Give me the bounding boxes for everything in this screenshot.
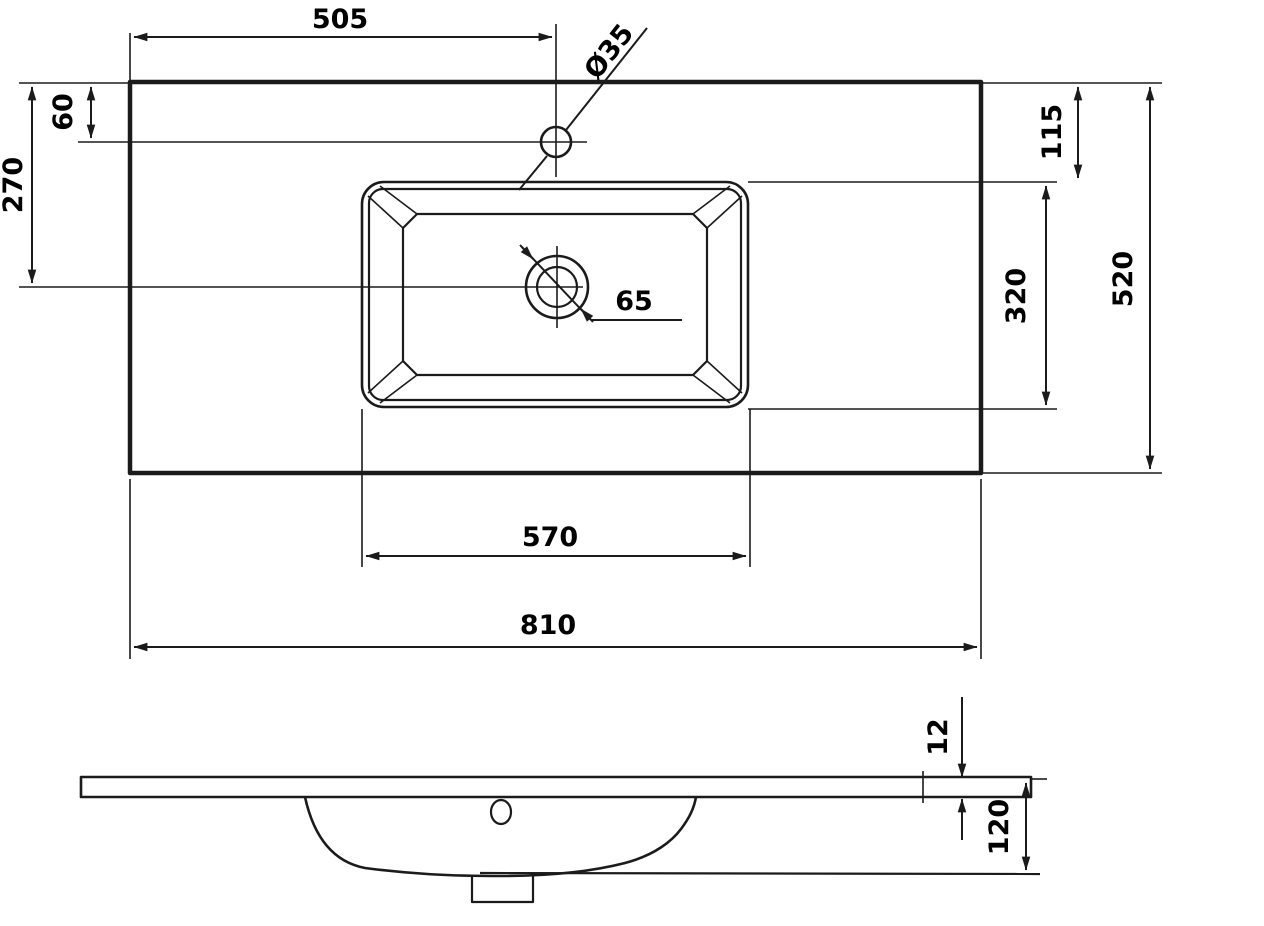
basin-corner-bevel xyxy=(368,361,403,393)
countertop-slab-profile xyxy=(81,777,1031,797)
basin-corner-bevel xyxy=(380,375,417,403)
basin-plan xyxy=(362,182,748,407)
basin-corner-bevel xyxy=(707,196,742,228)
dim-label-basin-width: 570 xyxy=(522,522,578,553)
dim-label-drain-hole: 65 xyxy=(615,286,653,317)
bowl-bottom-reference-line xyxy=(480,873,1040,874)
basin-corner-bevel xyxy=(380,186,417,214)
dim-label-overall-height: 120 xyxy=(984,799,1015,855)
basin-corner-bevel xyxy=(707,361,742,393)
dim-label-rim-offset-right: 115 xyxy=(1037,104,1068,160)
dim-label-overall-width: 810 xyxy=(520,610,576,641)
dim-65-group xyxy=(520,245,682,322)
dim-label-slab-thickness: 12 xyxy=(923,718,954,756)
basin-corner-bevel xyxy=(693,375,730,403)
bowl-profile xyxy=(305,797,696,876)
washbasin-drawing: 505 Ø35 60 270 115 320 520 65 570 810 12… xyxy=(0,0,1264,926)
dim-label-top-width: 505 xyxy=(312,4,368,35)
technical-drawing-canvas: 505 Ø35 60 270 115 320 520 65 570 810 12… xyxy=(0,0,1264,926)
basin-inner-rim xyxy=(369,189,741,400)
dim-label-faucet-offset: 60 xyxy=(48,93,79,131)
dim-label-drain-offset: 270 xyxy=(0,157,29,213)
dimension-labels: 505 Ø35 60 270 115 320 520 65 570 810 12… xyxy=(0,4,1139,855)
basin-outer-rim xyxy=(362,182,748,407)
dim-label-faucet-hole: Ø35 xyxy=(578,18,640,85)
side-view xyxy=(81,697,1047,902)
dim-arrow-65 xyxy=(520,245,533,259)
faucet-leader-line xyxy=(519,156,547,190)
basin-corner-bevel xyxy=(368,196,403,228)
basin-bowl-bottom xyxy=(403,214,707,375)
dim-label-basin-depth: 320 xyxy=(1001,268,1032,324)
drain-stub-profile xyxy=(472,875,533,902)
dim-label-overall-depth: 520 xyxy=(1108,251,1139,307)
plan-view xyxy=(19,24,1162,659)
faucet-hole-profile xyxy=(491,800,511,824)
basin-corner-bevel xyxy=(693,186,730,214)
